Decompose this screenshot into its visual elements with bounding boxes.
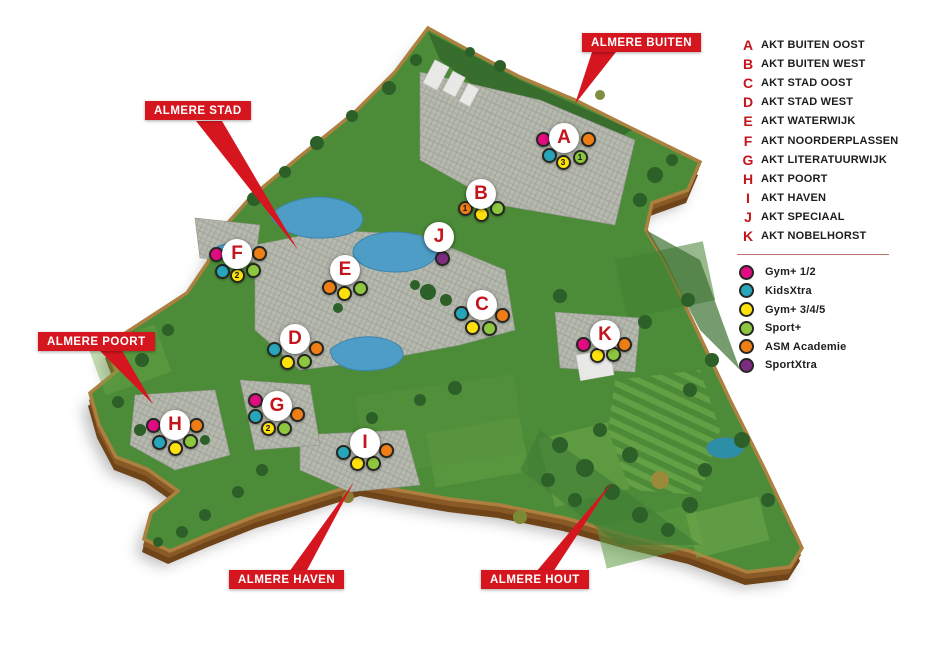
yellow-program-dot-icon — [465, 320, 480, 335]
almere-akt-map-infographic: ALMERE BUITENALMERE STADALMERE POORTALME… — [0, 0, 944, 667]
program-label: KidsXtra — [765, 285, 812, 297]
district-letter: H — [735, 171, 761, 187]
cyan-program-dot-icon — [267, 342, 282, 357]
legend-program-row: ASM Academie — [735, 337, 940, 356]
marker-letter-badge: B — [466, 179, 496, 209]
district-letter: J — [735, 209, 761, 225]
marker-letter-badge: E — [330, 255, 360, 285]
legend-separator — [737, 254, 889, 255]
district-label: AKT POORT — [761, 173, 828, 185]
legend-district-row: JAKT SPECIAAL — [735, 208, 940, 227]
yellow-program-dot-icon: 3 — [556, 155, 571, 170]
orange-program-dot-icon — [309, 341, 324, 356]
green-dot-icon — [739, 321, 754, 336]
orange-program-dot-icon — [189, 418, 204, 433]
marker-letter-badge: J — [424, 222, 454, 252]
legend-district-row: CAKT STAD OOST — [735, 73, 940, 92]
area-label-stad: ALMERE STAD — [145, 101, 251, 120]
marker-letter-badge: D — [280, 324, 310, 354]
district-letter: G — [735, 152, 761, 168]
district-letter: B — [735, 56, 761, 72]
green-program-dot-icon — [353, 281, 368, 296]
orange-dot-icon — [739, 339, 754, 354]
district-label: AKT SPECIAAL — [761, 211, 845, 223]
cyan-program-dot-icon — [152, 435, 167, 450]
purple-program-dot-icon — [435, 251, 450, 266]
legend-district-row: BAKT BUITEN WEST — [735, 54, 940, 73]
yellow-program-dot-icon: 2 — [230, 268, 245, 283]
yellow-program-dot-icon: 2 — [261, 421, 276, 436]
area-label-buiten: ALMERE BUITEN — [582, 33, 701, 52]
marker-letter-badge: F — [222, 239, 252, 269]
district-label: AKT STAD OOST — [761, 77, 853, 89]
legend-program-row: SportXtra — [735, 356, 940, 375]
legend-program-row: Sport+ — [735, 319, 940, 338]
district-letter: F — [735, 133, 761, 149]
district-label: AKT STAD WEST — [761, 96, 853, 108]
district-letter: I — [735, 190, 761, 206]
district-list: AAKT BUITEN OOSTBAKT BUITEN WESTCAKT STA… — [735, 35, 940, 246]
program-label: Sport+ — [765, 322, 801, 334]
legend-district-row: EAKT WATERWIJK — [735, 112, 940, 131]
legend-district-row: IAKT HAVEN — [735, 189, 940, 208]
cyan-program-dot-icon — [454, 306, 469, 321]
district-label: AKT BUITEN WEST — [761, 58, 865, 70]
green-program-dot-icon: 1 — [573, 150, 588, 165]
orange-program-dot-icon — [495, 308, 510, 323]
marker-letter-badge: G — [262, 391, 292, 421]
orange-program-dot-icon — [322, 280, 337, 295]
district-label: AKT HAVEN — [761, 192, 826, 204]
green-program-dot-icon — [482, 321, 497, 336]
magenta-dot-icon — [739, 265, 754, 280]
yellow-program-dot-icon — [280, 355, 295, 370]
orange-program-dot-icon — [252, 246, 267, 261]
cyan-program-dot-icon — [336, 445, 351, 460]
magenta-program-dot-icon — [576, 337, 591, 352]
legend-panel: AAKT BUITEN OOSTBAKT BUITEN WESTCAKT STA… — [735, 35, 940, 375]
area-label-poort: ALMERE POORT — [38, 332, 155, 351]
magenta-program-dot-icon — [146, 418, 161, 433]
marker-letter-badge: I — [350, 428, 380, 458]
marker-letter-badge: A — [549, 123, 579, 153]
program-label: Gym+ 1/2 — [765, 266, 816, 278]
green-program-dot-icon — [366, 456, 381, 471]
cyan-program-dot-icon — [248, 409, 263, 424]
cyan-dot-icon — [739, 283, 754, 298]
program-list: Gym+ 1/2KidsXtraGym+ 3/4/5Sport+ASM Acad… — [735, 263, 940, 375]
legend-district-row: DAKT STAD WEST — [735, 93, 940, 112]
district-letter: A — [735, 37, 761, 53]
district-label: AKT WATERWIJK — [761, 115, 855, 127]
marker-letter-badge: C — [467, 290, 497, 320]
legend-program-row: Gym+ 3/4/5 — [735, 300, 940, 319]
yellow-program-dot-icon — [168, 441, 183, 456]
area-label-haven: ALMERE HAVEN — [229, 570, 344, 589]
purple-dot-icon — [739, 358, 754, 373]
legend-program-row: Gym+ 1/2 — [735, 263, 940, 282]
district-letter: E — [735, 113, 761, 129]
green-program-dot-icon — [297, 354, 312, 369]
district-letter: D — [735, 94, 761, 110]
green-program-dot-icon — [246, 263, 261, 278]
legend-district-row: FAKT NOORDERPLASSEN — [735, 131, 940, 150]
marker-letter-badge: H — [160, 410, 190, 440]
district-label: AKT NOORDERPLASSEN — [761, 135, 898, 147]
district-letter: C — [735, 75, 761, 91]
magenta-program-dot-icon — [248, 393, 263, 408]
legend-district-row: AAKT BUITEN OOST — [735, 35, 940, 54]
marker-letter-badge: K — [590, 320, 620, 350]
yellow-dot-icon — [739, 302, 754, 317]
program-label: SportXtra — [765, 359, 817, 371]
yellow-program-dot-icon — [337, 286, 352, 301]
green-program-dot-icon — [277, 421, 292, 436]
orange-program-dot-icon — [379, 443, 394, 458]
area-label-hout: ALMERE HOUT — [481, 570, 589, 589]
district-letter: K — [735, 228, 761, 244]
orange-program-dot-icon — [581, 132, 596, 147]
district-label: AKT LITERATUURWIJK — [761, 154, 887, 166]
orange-program-dot-icon — [290, 407, 305, 422]
program-label: ASM Academie — [765, 341, 846, 353]
legend-district-row: HAKT POORT — [735, 169, 940, 188]
district-label: AKT BUITEN OOST — [761, 39, 865, 51]
program-label: Gym+ 3/4/5 — [765, 304, 825, 316]
district-label: AKT NOBELHORST — [761, 230, 866, 242]
legend-program-row: KidsXtra — [735, 282, 940, 301]
legend-district-row: GAKT LITERATUURWIJK — [735, 150, 940, 169]
legend-district-row: KAKT NOBELHORST — [735, 227, 940, 246]
